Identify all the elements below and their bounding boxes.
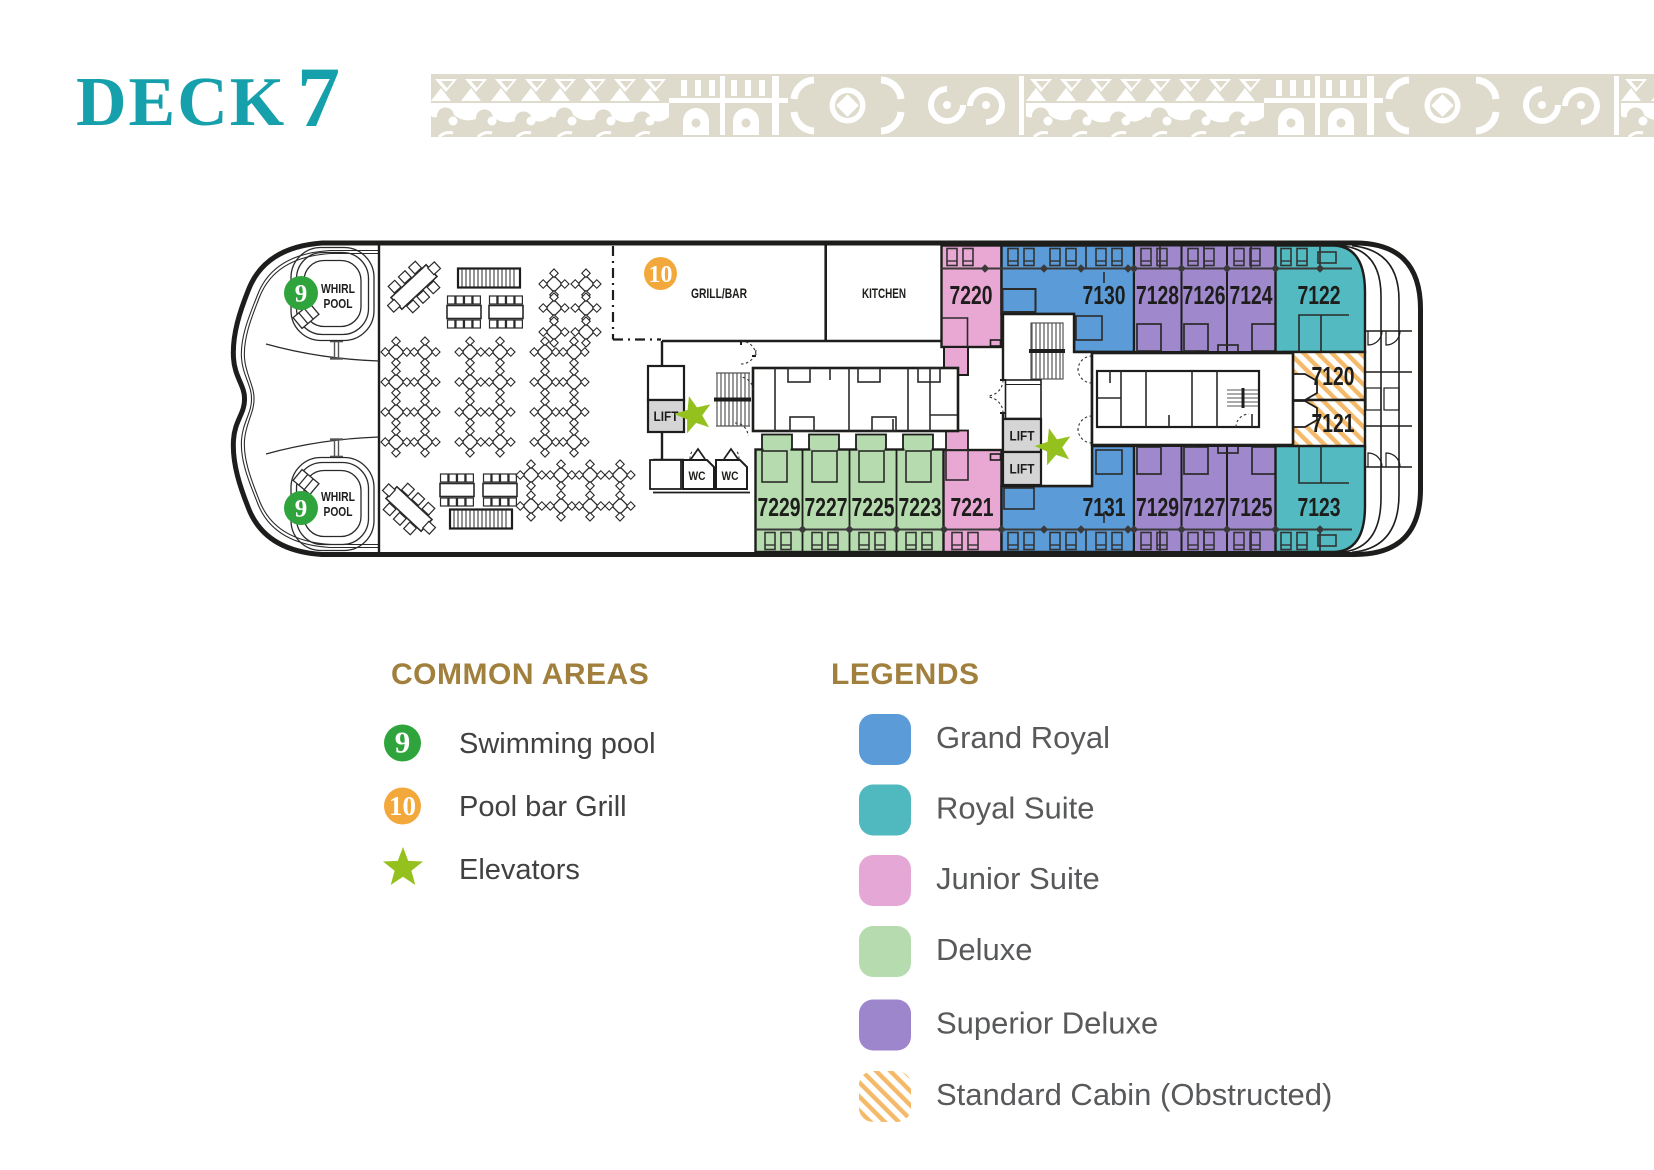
- svg-text:7127: 7127: [1183, 494, 1226, 522]
- svg-text:7129: 7129: [1136, 494, 1179, 522]
- svg-text:WC: WC: [689, 469, 706, 483]
- svg-text:7128: 7128: [1136, 282, 1179, 310]
- svg-text:7122: 7122: [1298, 282, 1341, 310]
- svg-text:Superior Deluxe: Superior Deluxe: [936, 1006, 1158, 1041]
- svg-text:9: 9: [395, 725, 411, 760]
- svg-text:7: 7: [297, 49, 340, 145]
- svg-text:COMMON AREAS: COMMON AREAS: [391, 658, 649, 691]
- svg-text:7221: 7221: [951, 494, 994, 522]
- svg-text:7124: 7124: [1230, 282, 1274, 310]
- svg-text:WHIRL: WHIRL: [321, 282, 355, 296]
- svg-text:GRILL/BAR: GRILL/BAR: [691, 285, 747, 301]
- svg-text:POOL: POOL: [324, 505, 353, 519]
- svg-text:7125: 7125: [1230, 494, 1273, 522]
- svg-text:LIFT: LIFT: [654, 408, 679, 424]
- svg-text:Junior Suite: Junior Suite: [936, 861, 1100, 896]
- svg-text:7225: 7225: [852, 494, 895, 522]
- svg-text:Swimming pool: Swimming pool: [459, 728, 656, 760]
- svg-text:LEGENDS: LEGENDS: [831, 658, 980, 691]
- svg-text:10: 10: [389, 791, 416, 821]
- svg-text:9: 9: [295, 281, 308, 308]
- svg-text:9: 9: [295, 496, 308, 523]
- svg-text:LIFT: LIFT: [1010, 428, 1035, 444]
- svg-text:10: 10: [649, 262, 673, 288]
- svg-text:7126: 7126: [1183, 282, 1226, 310]
- svg-text:Deluxe: Deluxe: [936, 932, 1033, 967]
- svg-text:Standard Cabin (Obstructed): Standard Cabin (Obstructed): [936, 1077, 1332, 1112]
- svg-text:WC: WC: [722, 469, 739, 483]
- svg-text:7131: 7131: [1083, 494, 1126, 522]
- svg-text:POOL: POOL: [324, 297, 353, 311]
- svg-text:Pool bar Grill: Pool bar Grill: [459, 791, 627, 823]
- svg-text:7121: 7121: [1312, 410, 1355, 438]
- svg-text:DECK: DECK: [76, 64, 286, 141]
- svg-text:Grand Royal: Grand Royal: [936, 720, 1110, 755]
- svg-text:7130: 7130: [1083, 282, 1126, 310]
- svg-text:LIFT: LIFT: [1010, 461, 1035, 477]
- svg-text:7220: 7220: [950, 282, 993, 310]
- svg-text:WHIRL: WHIRL: [321, 490, 355, 504]
- svg-text:Elevators: Elevators: [459, 854, 580, 886]
- svg-text:7229: 7229: [758, 494, 801, 522]
- svg-text:7123: 7123: [1298, 494, 1341, 522]
- svg-text:7120: 7120: [1312, 363, 1355, 391]
- svg-text:7227: 7227: [805, 494, 848, 522]
- svg-text:7223: 7223: [899, 494, 942, 522]
- svg-text:KITCHEN: KITCHEN: [862, 285, 906, 301]
- svg-text:Royal Suite: Royal Suite: [936, 791, 1095, 826]
